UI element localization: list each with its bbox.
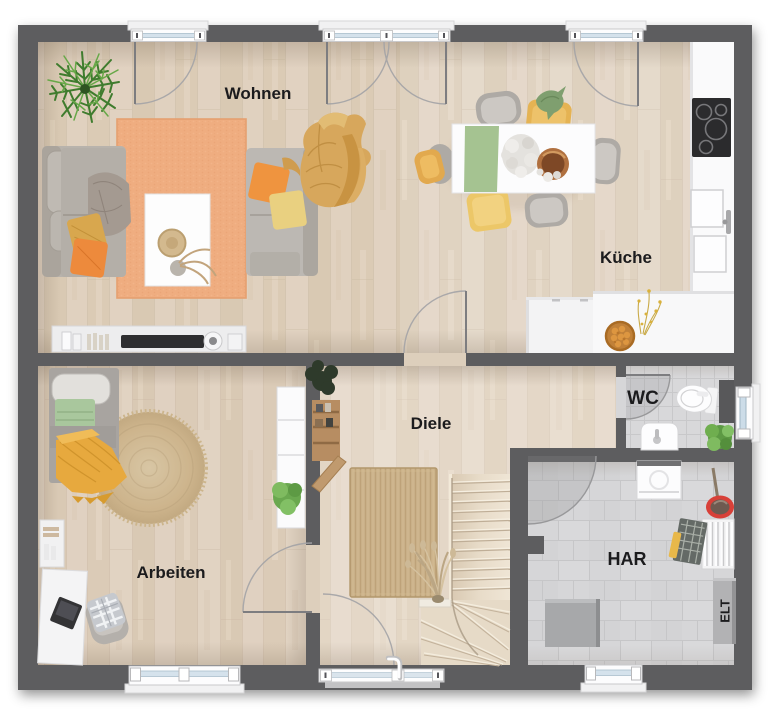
svg-text:Arbeiten: Arbeiten	[137, 563, 206, 582]
svg-text:HAR: HAR	[608, 549, 647, 569]
svg-text:ELT: ELT	[718, 599, 733, 623]
svg-text:Diele: Diele	[411, 414, 452, 433]
svg-text:Küche: Küche	[600, 248, 652, 267]
svg-text:Wohnen: Wohnen	[225, 84, 292, 103]
svg-text:WC: WC	[627, 388, 659, 409]
